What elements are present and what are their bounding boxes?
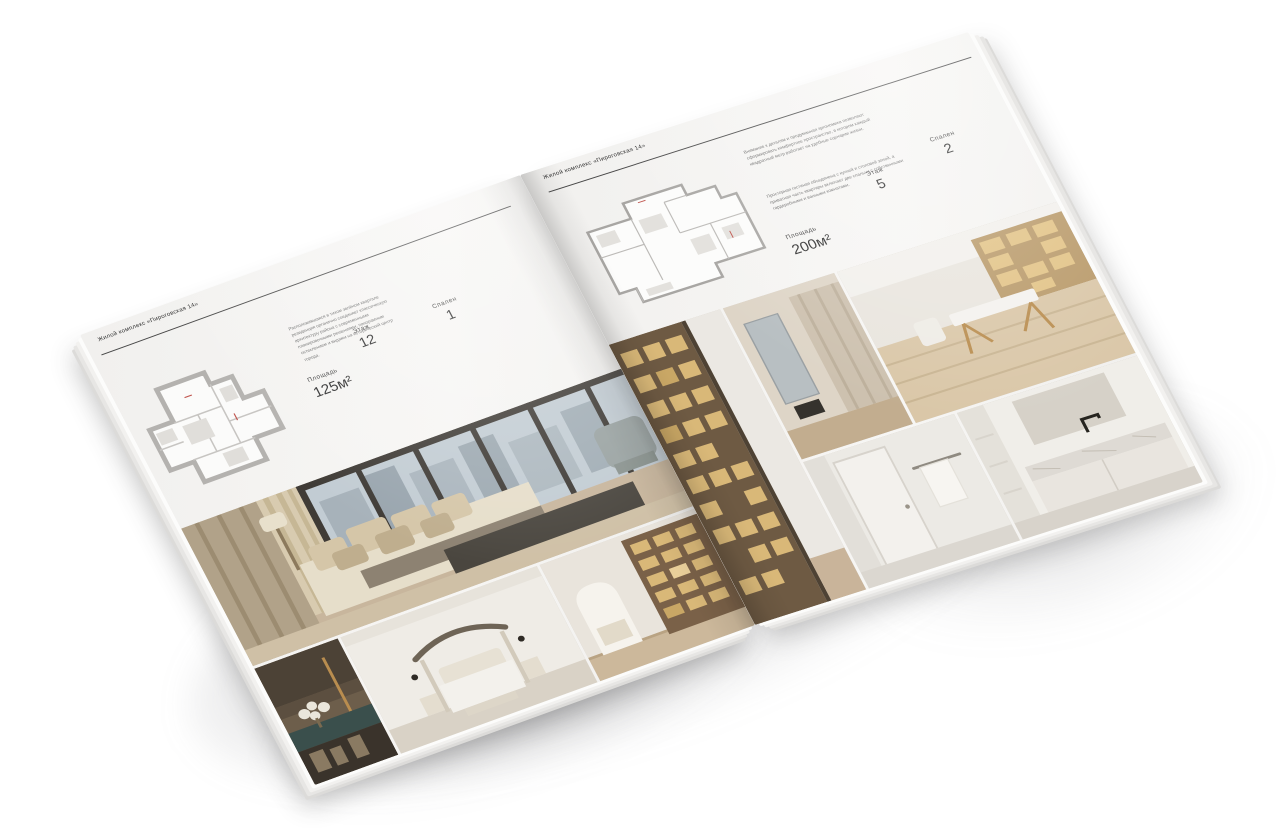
brochure-mockup-scene: Жилой комплекс «Пироговская 14» Располож… xyxy=(0,0,1280,835)
